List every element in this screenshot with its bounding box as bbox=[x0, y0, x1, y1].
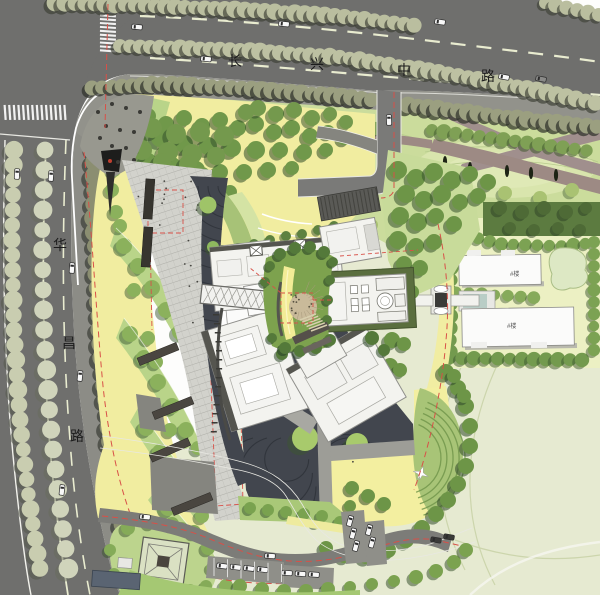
svg-text:#楼: #楼 bbox=[507, 322, 516, 330]
svg-text:路: 路 bbox=[481, 68, 495, 84]
svg-text:长: 长 bbox=[228, 53, 242, 69]
svg-text:中: 中 bbox=[397, 62, 411, 78]
svg-text:#楼: #楼 bbox=[510, 270, 519, 278]
svg-text:华: 华 bbox=[53, 237, 67, 253]
svg-text:路: 路 bbox=[70, 428, 84, 444]
svg-text:兴: 兴 bbox=[310, 56, 324, 72]
svg-text:昌: 昌 bbox=[62, 335, 76, 351]
